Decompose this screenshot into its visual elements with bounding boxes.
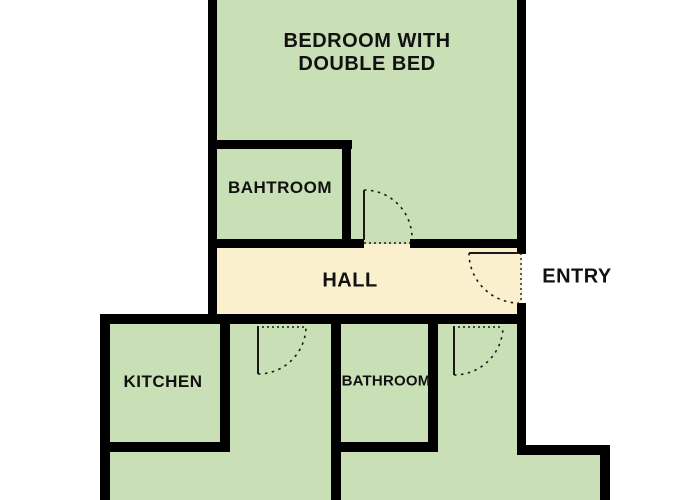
- wall-bathroom-top-top: [208, 140, 352, 149]
- wall-outer-bottom-right: [600, 445, 610, 500]
- wall-hall-top-right-segment: [410, 239, 526, 248]
- wall-bedroom-left: [208, 0, 217, 324]
- wall-step-right: [517, 445, 610, 455]
- floor-plan: BEDROOM WITH DOUBLE BED BAHTROOM HALL EN…: [0, 0, 700, 500]
- bedroom-label-line1: BEDROOM WITH: [283, 30, 450, 53]
- bedroom-label: BEDROOM WITH DOUBLE BED: [283, 30, 450, 76]
- wall-hall-bottom: [100, 314, 526, 324]
- entry-label: ENTRY: [542, 266, 612, 289]
- wall-bathroom-bottom-bottom: [331, 442, 438, 452]
- bathroom-bottom-label: BATHROOM: [342, 372, 431, 389]
- wall-hall-right-below-entry: [517, 303, 526, 445]
- bedroom-label-line2: DOUBLE BED: [283, 53, 450, 76]
- hall-label: HALL: [322, 270, 377, 293]
- room-bottom-right: [336, 450, 605, 500]
- wall-bathroom-bottom-left: [331, 314, 341, 500]
- wall-bathroom-top-right: [342, 140, 351, 248]
- bathroom-top-label: BAHTROOM: [228, 178, 332, 198]
- room-bottom-left: [105, 447, 336, 500]
- wall-bedroom-right: [517, 0, 526, 248]
- wall-kitchen-left: [100, 314, 110, 500]
- wall-hall-top-left-segment: [208, 239, 364, 248]
- wall-kitchen-right: [220, 314, 230, 452]
- wall-kitchen-bottom: [100, 442, 230, 452]
- kitchen-label: KITCHEN: [123, 372, 202, 392]
- wall-hall-right-above-entry: [517, 248, 526, 254]
